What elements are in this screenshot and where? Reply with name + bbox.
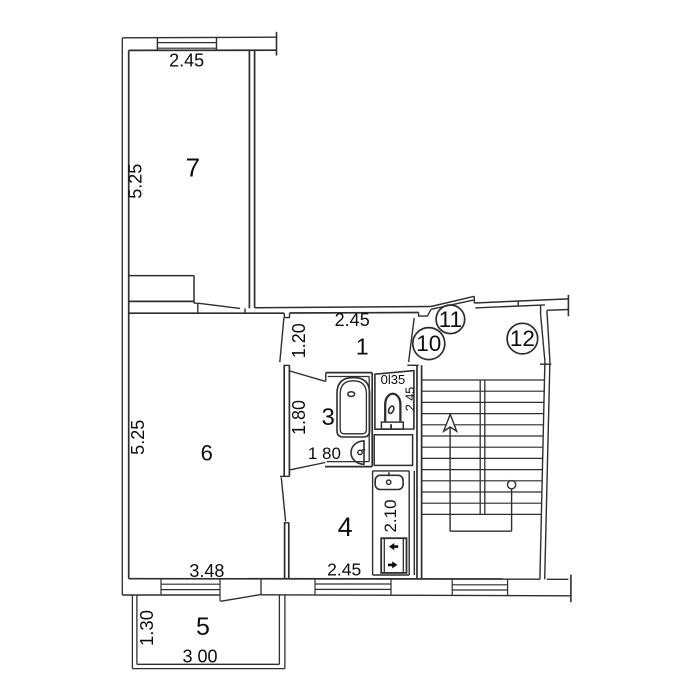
svg-text:1.20: 1.20 — [289, 323, 309, 358]
svg-text:3: 3 — [322, 404, 335, 431]
svg-text:2.10: 2.10 — [381, 499, 400, 532]
svg-text:2.45: 2.45 — [169, 51, 204, 71]
svg-text:1.80: 1.80 — [289, 400, 309, 435]
svg-text:1 80: 1 80 — [308, 444, 341, 463]
svg-text:2.45: 2.45 — [327, 560, 361, 580]
svg-text:5.25: 5.25 — [128, 420, 148, 455]
svg-text:5: 5 — [196, 613, 210, 641]
svg-text:5.25: 5.25 — [126, 164, 146, 199]
svg-text:0l35: 0l35 — [381, 372, 406, 387]
svg-text:2.45: 2.45 — [335, 310, 370, 330]
svg-text:4: 4 — [338, 512, 353, 542]
svg-text:12: 12 — [510, 326, 535, 351]
svg-text:6: 6 — [201, 441, 213, 466]
svg-text:3 00: 3 00 — [182, 646, 217, 666]
svg-text:10: 10 — [416, 331, 441, 356]
svg-text:7: 7 — [186, 152, 200, 182]
svg-text:11: 11 — [439, 307, 462, 332]
svg-text:1.30: 1.30 — [136, 610, 157, 646]
svg-text:2.45: 2.45 — [403, 387, 417, 411]
svg-text:1: 1 — [356, 333, 369, 359]
